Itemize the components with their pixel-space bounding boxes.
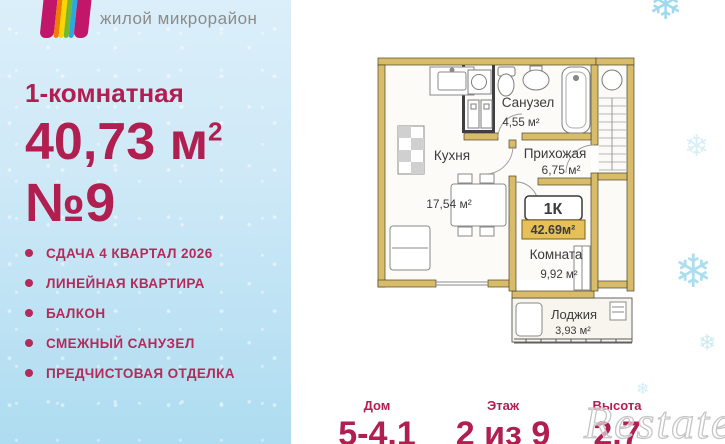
kitchen-window [436,282,488,285]
watermark: Restate [584,396,725,444]
kitchen-sink-icon [430,67,474,95]
apartment-number: №9 [25,172,115,234]
room-name: Комната [530,247,583,262]
brand-logo-icon [39,0,92,38]
apartment-badge: 1К 42.69м² [522,196,585,239]
feature-item: ПРЕДЧИСТОВАЯ ОТДЕЛКА [25,358,235,388]
stat-value: 2 из 9 [448,417,558,444]
snowflake-icon: ❄ [698,332,716,354]
room-name: Лоджия [551,307,597,322]
feature-item: БАЛКОН [25,298,235,328]
feature-item: СДАЧА 4 КВАРТАЛ 2026 [25,238,235,268]
bullet-icon [25,249,33,257]
bullet-icon [25,279,33,287]
room-area: 9,92 м² [540,269,577,281]
stat-label: Этаж [448,398,558,413]
badge-type: 1К [544,201,563,218]
floor-plan: Кухня 17,54 м² Санузел 4,55 м² Прихожая … [376,56,642,348]
stove-icon [398,126,424,174]
bullet-icon [25,339,33,347]
elevator-icon [602,70,622,90]
room-area: 3,93 м² [555,325,591,337]
apartment-type-label: 1-комнатная [25,78,184,109]
badge-total-area: 42.69м² [531,223,576,237]
bullet-icon [25,369,33,377]
loggia-cabinet-icon [516,303,542,336]
room-area: 17,54 м² [426,197,472,211]
feature-label: СМЕЖНЫЙ САНУЗЕЛ [46,336,195,351]
room-area: 6,75 м² [542,163,581,177]
feature-label: ПРЕДЧИСТОВАЯ ОТДЕЛКА [46,366,235,381]
area-sup: 2 [208,117,222,147]
stat-floor: Этаж 2 из 9 [448,398,558,444]
stat-house: Дом 5-4.1 [322,398,432,444]
feature-label: БАЛКОН [46,306,105,321]
snowflake-icon: ❄ [684,132,709,162]
feature-label: СДАЧА 4 КВАРТАЛ 2026 [46,246,213,261]
area-value: 40,73 м [25,113,208,171]
toilet-icon [498,67,515,96]
room-name: Санузел [502,95,555,110]
feature-list: СДАЧА 4 КВАРТАЛ 2026 ЛИНЕЙНАЯ КВАРТИРА Б… [25,238,235,388]
left-panel: жилой микрорайон 1-комнатная 40,73 м2 №9… [0,0,291,444]
apartment-total-area: 40,73 м2 [25,112,223,172]
brand-logo-subtitle: жилой микрорайон [100,9,257,38]
feature-label: ЛИНЕЙНАЯ КВАРТИРА [46,276,205,291]
apartment-flyer: жилой микрорайон 1-комнатная 40,73 м2 №9… [0,0,725,444]
room-name: Кухня [434,148,470,163]
room-name: Прихожая [524,146,587,161]
bullet-icon [25,309,33,317]
brand-logo: жилой микрорайон [42,0,257,38]
stat-label: Дом [322,398,432,413]
stat-value: 5-4.1 [322,417,432,444]
feature-item: ЛИНЕЙНАЯ КВАРТИРА [25,268,235,298]
bathtub-icon [562,67,590,133]
loggia-unit-icon [610,302,626,320]
sofa-icon [390,226,430,270]
snowflake-icon: ❄ [674,248,713,294]
room-area: 4,55 м² [502,117,539,129]
feature-item: СМЕЖНЫЙ САНУЗЕЛ [25,328,235,358]
snowflake-icon: ❄ [648,0,683,26]
